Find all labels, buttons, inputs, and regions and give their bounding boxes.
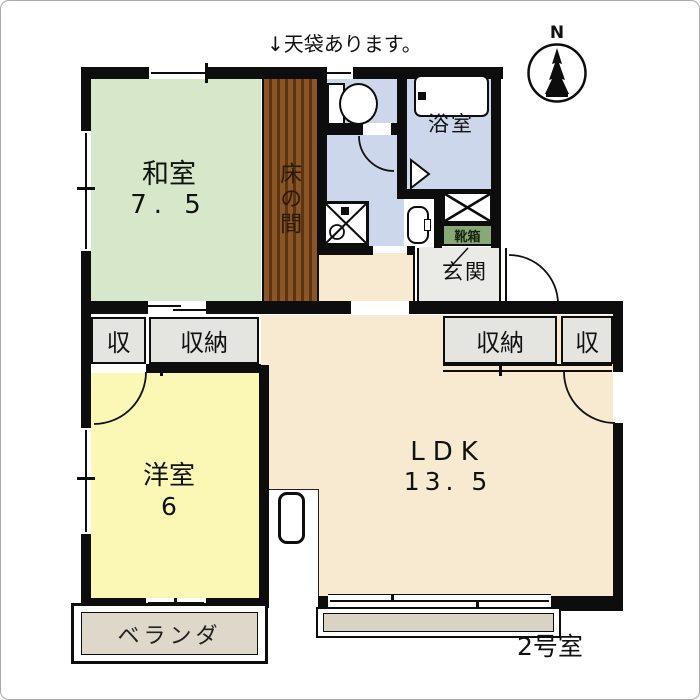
entrance-step-line-b bbox=[417, 248, 419, 304]
ldk-label: LDK 13. 5 bbox=[378, 439, 518, 496]
veranda-outer: ベランダ bbox=[71, 603, 268, 664]
washitsu-label: 和室 7. 5 bbox=[109, 161, 229, 220]
western-ldk-wall bbox=[259, 365, 269, 608]
wall-tick bbox=[77, 187, 95, 190]
unit-number-label: 2号室 bbox=[517, 634, 617, 660]
compass-needle-icon bbox=[545, 48, 569, 94]
bathtub-faucet bbox=[418, 92, 426, 100]
front-door-arc bbox=[509, 255, 558, 304]
wall-tick bbox=[77, 477, 95, 480]
kitchen-corridor-floor bbox=[319, 253, 413, 301]
shoe-box: 靴箱 bbox=[442, 224, 493, 246]
floor-plan: 収 収納 収納 収 靴箱 ベランダ bbox=[0, 0, 700, 700]
tokonoma-label: 床の間 bbox=[277, 144, 300, 254]
kitchen-ldk-opening bbox=[351, 301, 409, 314]
closet-right-small-label: 収 bbox=[575, 323, 599, 358]
western-room-label: 洋室 6 bbox=[109, 463, 229, 521]
veranda-label: ベランダ bbox=[117, 618, 221, 650]
washing-machine-faucet bbox=[341, 207, 349, 215]
entrance-label: 玄関 bbox=[437, 261, 493, 283]
toilet-bowl bbox=[339, 83, 378, 125]
wall-tick bbox=[160, 362, 163, 376]
washbasin-tap bbox=[424, 219, 431, 231]
veranda-inner: ベランダ bbox=[81, 612, 258, 655]
closet-right-small: 収 bbox=[561, 316, 613, 364]
western-door-opening bbox=[91, 364, 146, 373]
closet-left-small: 収 bbox=[91, 317, 146, 364]
closet-right: 収納 bbox=[443, 316, 557, 364]
closet-left-label: 収納 bbox=[180, 323, 228, 358]
entrance-step-line-a bbox=[413, 248, 415, 304]
wall-tick bbox=[205, 63, 208, 83]
shoe-cabinet bbox=[442, 191, 493, 224]
front-door-leaf-a bbox=[499, 248, 501, 304]
compass-circle bbox=[529, 45, 586, 102]
bathroom-label: 浴室 bbox=[419, 113, 483, 135]
shoe-box-label: 靴箱 bbox=[454, 226, 480, 245]
closet-left-small-label: 収 bbox=[107, 323, 131, 358]
balcony-inner bbox=[323, 613, 554, 632]
washitsu-fusuma-opening bbox=[148, 301, 206, 314]
compass-n-label: N bbox=[547, 25, 567, 43]
closet-left: 収納 bbox=[149, 317, 259, 364]
western-door-leaf bbox=[278, 492, 305, 544]
closet-right-label: 収納 bbox=[476, 323, 524, 358]
front-door-leaf-b bbox=[505, 248, 507, 304]
tenbukuro-note: ↓天袋あります。 bbox=[267, 34, 467, 55]
